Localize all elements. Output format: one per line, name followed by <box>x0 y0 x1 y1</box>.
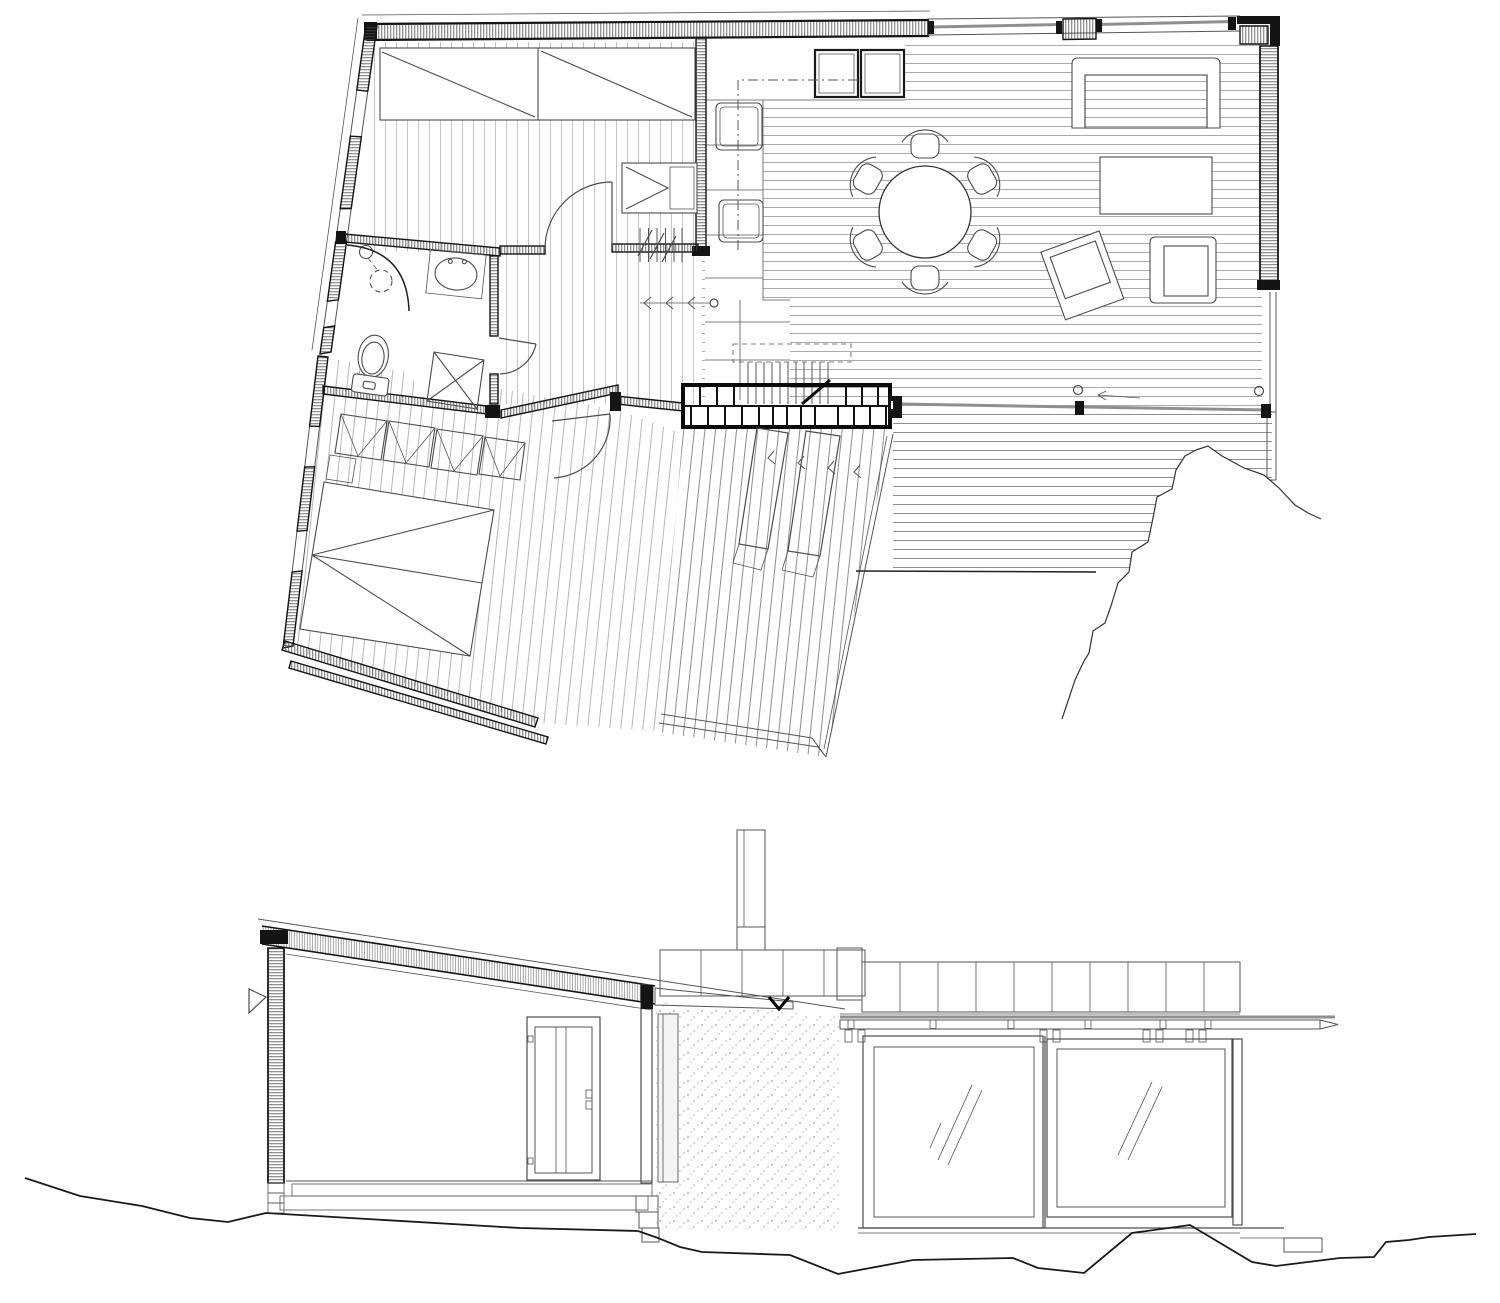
dining-table-icon <box>879 166 971 258</box>
deck-lower-floor <box>658 429 891 757</box>
roof-band <box>262 926 655 1004</box>
concrete-core <box>656 1002 840 1230</box>
roof-clips <box>848 1021 1211 1029</box>
drawing-sheet <box>0 0 1500 1303</box>
north-wall <box>362 11 930 40</box>
cooktop-module-icon <box>815 50 858 97</box>
mullion <box>1063 19 1096 40</box>
floor-build-up <box>280 1184 652 1210</box>
glazing <box>932 25 1062 28</box>
armchair-icon <box>1150 237 1216 303</box>
chimney-icon <box>737 830 765 950</box>
closet-icon <box>622 163 697 213</box>
roof-extension-beam <box>655 988 793 1009</box>
architectural-drawing <box>0 0 1500 1303</box>
glazed-panel-icon <box>863 1036 1043 1228</box>
hall-floor <box>502 252 698 404</box>
north-window-band <box>928 16 1280 46</box>
clerestory-band <box>660 948 1240 1012</box>
building-section <box>25 830 1476 1274</box>
interior-door-icon <box>527 1017 600 1180</box>
west-wall-upper <box>312 18 377 354</box>
floor-plan <box>282 11 1321 757</box>
glass-door-beyond <box>658 1014 678 1182</box>
glazing <box>1084 407 1268 410</box>
glazing <box>1097 22 1234 25</box>
sill-step <box>1284 1238 1322 1252</box>
left-clad-wall <box>249 930 288 1213</box>
deck-edge <box>856 571 1096 572</box>
section-right-building <box>840 1014 1338 1252</box>
bed-upper-icon <box>380 48 695 120</box>
bed-lower-icon <box>300 482 494 656</box>
eave-line <box>362 11 930 15</box>
roof-surface-line <box>258 919 845 1009</box>
coffee-table-icon <box>1100 157 1212 214</box>
roof-beam <box>840 1020 1320 1029</box>
window-post <box>1233 1039 1242 1225</box>
glazing-reflection <box>930 1085 982 1165</box>
window-post <box>641 985 652 1183</box>
glazed-panel-icon <box>1047 1039 1232 1217</box>
roof-beam-tip <box>1320 1020 1338 1029</box>
cooktop-module-icon <box>861 50 904 97</box>
gutter-icon <box>249 989 266 1013</box>
glazing-reflection <box>1118 1082 1162 1160</box>
